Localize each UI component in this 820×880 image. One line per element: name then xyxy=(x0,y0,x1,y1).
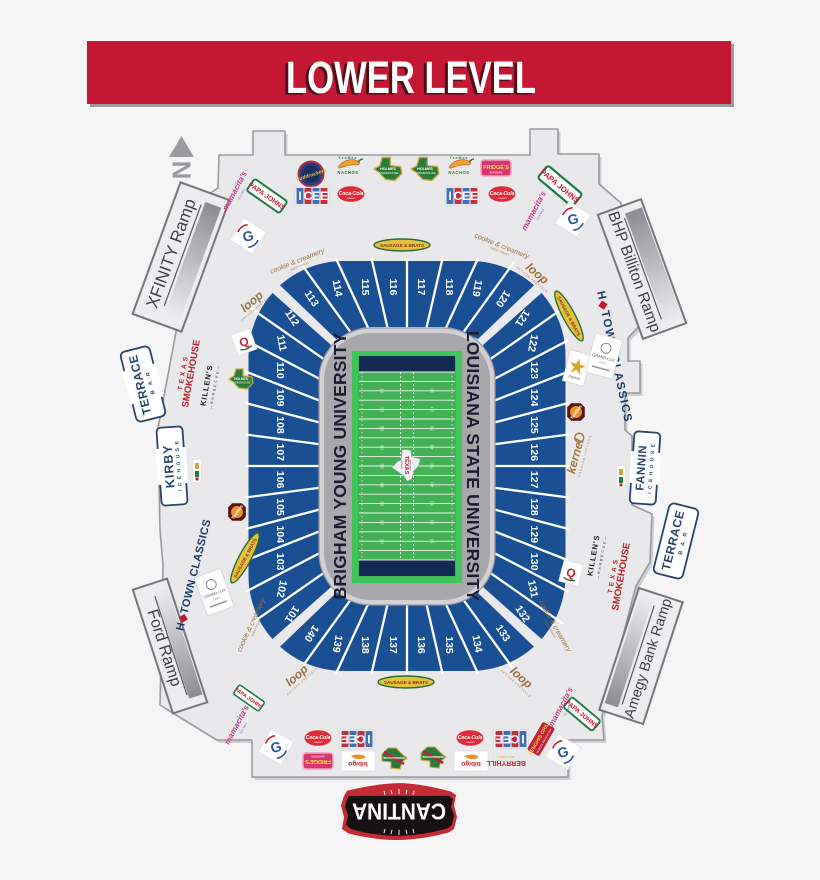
svg-text:115: 115 xyxy=(359,279,371,296)
svg-text:Coca-Cola: Coca-Cola xyxy=(490,191,515,197)
svg-text:10: 10 xyxy=(430,388,435,394)
svg-text:TexMex: TexMex xyxy=(339,156,358,160)
svg-text:BURGERS: BURGERS xyxy=(490,171,503,175)
svg-text:CLASSIC: CLASSIC xyxy=(465,741,475,744)
svg-text:NACHOS: NACHOS xyxy=(337,170,358,175)
svg-text:129: 129 xyxy=(528,526,540,544)
svg-text:118: 118 xyxy=(443,279,455,296)
svg-text:136: 136 xyxy=(415,636,427,654)
svg-text:E: E xyxy=(462,189,470,203)
svg-text:E: E xyxy=(341,732,349,746)
svg-text:SMOKEHOUSE: SMOKEHOUSE xyxy=(422,755,444,759)
svg-text:CLASSIC: CLASSIC xyxy=(497,197,507,200)
svg-text:LOWER LEVEL: LOWER LEVEL xyxy=(286,52,536,103)
svg-text:30: 30 xyxy=(430,501,435,507)
svg-text:126: 126 xyxy=(528,444,540,462)
svg-text:E: E xyxy=(320,189,328,203)
svg-text:BAJA GRILL: BAJA GRILL xyxy=(497,755,514,759)
svg-text:bibigo: bibigo xyxy=(461,760,481,767)
svg-text:I: I xyxy=(367,732,370,746)
svg-text:50: 50 xyxy=(430,463,435,469)
svg-text:109: 109 xyxy=(274,389,286,407)
svg-text:107: 107 xyxy=(274,444,286,462)
svg-text:20: 20 xyxy=(380,407,385,413)
svg-text:N: N xyxy=(167,161,197,180)
svg-text:SMOKEHOUSE: SMOKEHOUSE xyxy=(377,171,398,175)
svg-text:ADVOCARE: ADVOCARE xyxy=(409,460,412,471)
svg-text:110: 110 xyxy=(274,362,286,379)
svg-text:40: 40 xyxy=(380,445,385,451)
svg-text:20: 20 xyxy=(430,407,435,413)
svg-text:128: 128 xyxy=(528,498,540,516)
svg-text:30: 30 xyxy=(380,501,385,507)
svg-text:bibigo: bibigo xyxy=(348,760,368,767)
svg-text:123: 123 xyxy=(528,362,540,380)
svg-text:Coca-Cola: Coca-Cola xyxy=(339,191,364,197)
svg-text:40: 40 xyxy=(430,444,435,450)
svg-text:NACHOS: NACHOS xyxy=(448,170,469,175)
svg-text:125: 125 xyxy=(528,416,540,434)
svg-text:Coca-Cola: Coca-Cola xyxy=(306,735,331,741)
svg-text:30: 30 xyxy=(380,426,385,432)
svg-text:105: 105 xyxy=(274,498,286,516)
svg-text:CLASSIC: CLASSIC xyxy=(346,197,356,200)
svg-text:104: 104 xyxy=(274,526,286,544)
svg-text:FRIDGE'S: FRIDGE'S xyxy=(305,758,331,764)
svg-text:50: 50 xyxy=(380,463,385,469)
svg-text:LOUISIANA STATE UNIVERSITY: LOUISIANA STATE UNIVERSITY xyxy=(463,331,483,601)
svg-text:117: 117 xyxy=(415,279,427,296)
svg-text:10: 10 xyxy=(380,388,385,394)
svg-text:BRIGHAM YOUNG UNIVERSITY: BRIGHAM YOUNG UNIVERSITY xyxy=(330,332,350,599)
svg-text:E: E xyxy=(495,732,503,746)
svg-text:FRIDGE'S: FRIDGE'S xyxy=(483,165,509,171)
svg-text:SAUSAGE & BRATS: SAUSAGE & BRATS xyxy=(384,680,428,685)
svg-text:SAUSAGE & BRATS: SAUSAGE & BRATS xyxy=(380,243,424,248)
svg-text:TexMex: TexMex xyxy=(450,156,469,160)
svg-text:CLASSIC: CLASSIC xyxy=(313,741,323,744)
svg-text:E: E xyxy=(349,732,357,746)
svg-text:40: 40 xyxy=(430,482,435,488)
svg-text:130: 130 xyxy=(528,553,540,571)
svg-text:SMOKEHOUSE: SMOKEHOUSE xyxy=(232,381,251,385)
svg-text:116: 116 xyxy=(387,279,399,296)
svg-text:30: 30 xyxy=(430,425,435,431)
svg-text:127: 127 xyxy=(528,471,540,489)
svg-text:20: 20 xyxy=(380,520,385,526)
svg-text:BURGERS: BURGERS xyxy=(311,755,324,759)
svg-text:KICKOFF: KICKOFF xyxy=(400,461,402,470)
svg-text:20: 20 xyxy=(430,519,435,525)
svg-text:E: E xyxy=(312,189,320,203)
svg-text:137: 137 xyxy=(387,636,399,654)
svg-text:10: 10 xyxy=(380,539,385,545)
svg-text:SMOKEHOUSE: SMOKEHOUSE xyxy=(383,756,405,760)
svg-text:106: 106 xyxy=(274,471,286,489)
svg-text:103: 103 xyxy=(274,553,286,571)
svg-text:10: 10 xyxy=(430,538,435,544)
svg-text:CANTINA: CANTINA xyxy=(352,798,446,824)
svg-text:I: I xyxy=(448,189,451,203)
svg-text:E: E xyxy=(503,732,511,746)
svg-text:I: I xyxy=(521,732,524,746)
svg-text:135: 135 xyxy=(443,636,455,654)
svg-text:SMOKEHOUSE: SMOKEHOUSE xyxy=(414,171,435,175)
svg-text:Coca-Cola: Coca-Cola xyxy=(458,735,483,741)
svg-text:E: E xyxy=(470,189,478,203)
svg-text:108: 108 xyxy=(274,416,286,434)
svg-text:TEXAS: TEXAS xyxy=(403,456,409,475)
svg-text:124: 124 xyxy=(528,389,540,407)
svg-text:138: 138 xyxy=(359,636,371,654)
svg-text:I: I xyxy=(298,189,301,203)
svg-text:HOLMES: HOLMES xyxy=(234,377,248,381)
svg-text:BERRYHILL: BERRYHILL xyxy=(485,759,526,766)
svg-text:40: 40 xyxy=(380,482,385,488)
